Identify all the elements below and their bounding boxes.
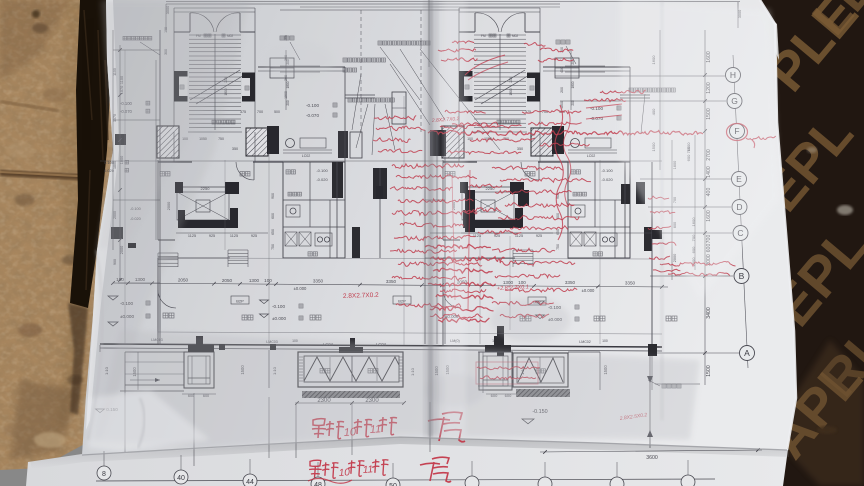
svg-text:48: 48: [314, 482, 322, 486]
svg-text:40: 40: [177, 475, 185, 482]
svg-text:3600: 3600: [646, 455, 658, 461]
svg-text:44: 44: [246, 479, 254, 486]
svg-text:11: 11: [362, 464, 373, 476]
svg-text:10: 10: [338, 467, 350, 479]
svg-text:8: 8: [102, 471, 106, 478]
